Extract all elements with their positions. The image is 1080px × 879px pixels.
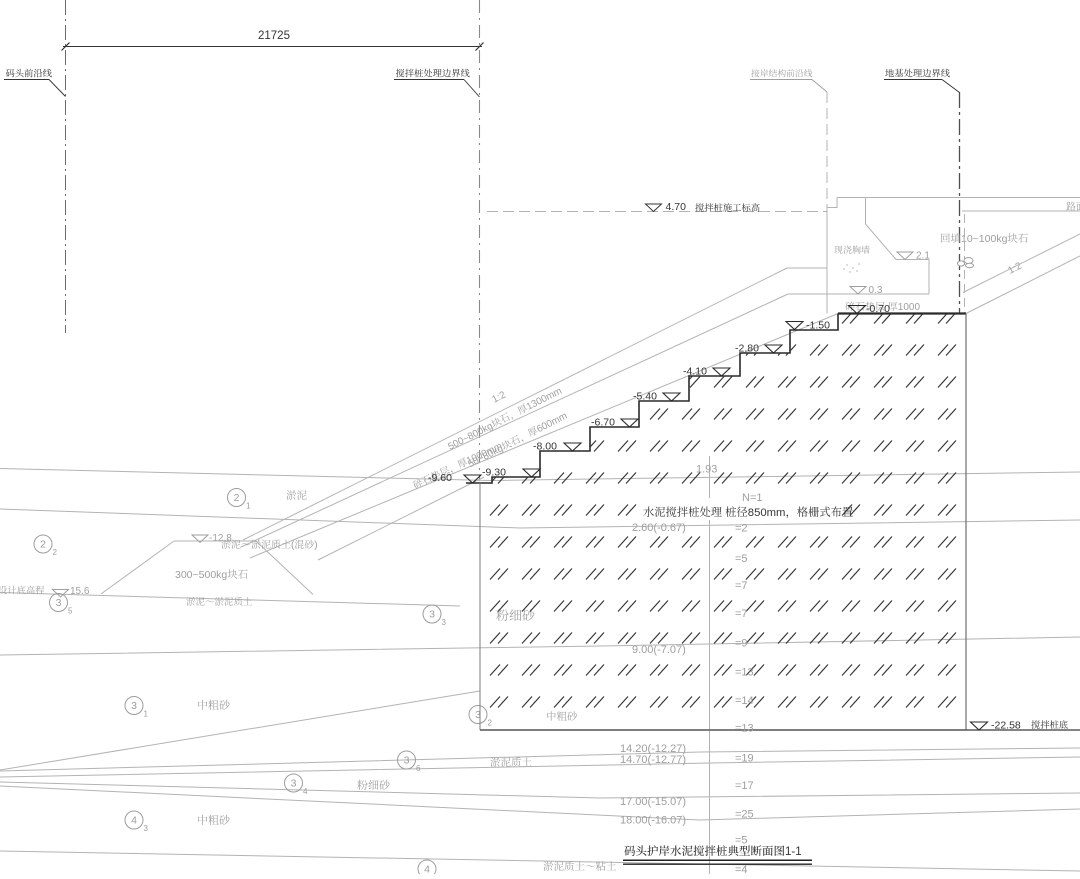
svg-text:=7: =7 <box>735 608 748 620</box>
svg-text:4: 4 <box>131 815 137 827</box>
svg-text:17.00(-15.07): 17.00(-15.07) <box>620 796 686 808</box>
svg-text:=5: =5 <box>735 553 748 565</box>
svg-text:9.00(-7.07): 9.00(-7.07) <box>632 644 686 656</box>
svg-text:3: 3 <box>144 824 149 833</box>
svg-text:2.1: 2.1 <box>916 251 930 262</box>
svg-text:-6.70: -6.70 <box>591 417 615 429</box>
svg-text:-0.70: -0.70 <box>866 303 890 315</box>
svg-text:=5: =5 <box>735 835 748 847</box>
svg-text:5: 5 <box>68 607 73 616</box>
svg-text:4.70: 4.70 <box>666 201 687 213</box>
svg-text:15.6: 15.6 <box>70 586 90 597</box>
svg-text:1.93: 1.93 <box>696 464 717 476</box>
svg-text:300~500kg: 300~500kg <box>175 569 227 581</box>
svg-text:-1.50: -1.50 <box>806 320 830 332</box>
svg-text:1: 1 <box>144 710 149 719</box>
svg-text:3: 3 <box>429 609 435 621</box>
svg-text:=14: =14 <box>735 695 754 707</box>
svg-text:0.3: 0.3 <box>869 285 883 296</box>
svg-text:1-1: 1-1 <box>785 846 802 858</box>
svg-text:=4: =4 <box>735 864 748 874</box>
svg-text:-2.80: -2.80 <box>735 343 759 355</box>
svg-text:14.70(-12.77): 14.70(-12.77) <box>620 754 686 766</box>
svg-text:18.00(-16.07): 18.00(-16.07) <box>620 815 686 827</box>
svg-text:21725: 21725 <box>258 30 290 42</box>
svg-text:=9: =9 <box>735 638 748 650</box>
svg-text:=25: =25 <box>735 809 754 821</box>
svg-text:): ) <box>314 540 317 551</box>
svg-text:2: 2 <box>234 492 240 504</box>
svg-text:3: 3 <box>291 778 297 790</box>
svg-text:3: 3 <box>56 597 62 609</box>
svg-text:2: 2 <box>488 719 493 728</box>
svg-text:2: 2 <box>40 539 46 551</box>
svg-text:2.60(-0.67): 2.60(-0.67) <box>632 522 686 534</box>
svg-text:-22.58: -22.58 <box>991 720 1021 732</box>
svg-text:=13: =13 <box>735 723 754 735</box>
svg-text:N=1: N=1 <box>742 492 763 504</box>
svg-text:1: 1 <box>246 502 251 511</box>
svg-text:-4.10: -4.10 <box>683 366 707 378</box>
svg-text:2: 2 <box>53 548 58 557</box>
svg-text:=17: =17 <box>735 780 754 792</box>
svg-text:4: 4 <box>424 864 430 874</box>
svg-text:850mm: 850mm <box>748 507 786 519</box>
svg-text:-8.00: -8.00 <box>533 441 557 453</box>
svg-text:4: 4 <box>303 787 308 796</box>
svg-text:1000: 1000 <box>898 302 921 313</box>
svg-text:3: 3 <box>442 618 447 627</box>
svg-text:-12.8: -12.8 <box>209 533 232 544</box>
svg-text:3: 3 <box>404 755 410 767</box>
svg-text:3: 3 <box>131 700 137 712</box>
svg-text:=2: =2 <box>735 523 748 535</box>
svg-text:-9.30: -9.30 <box>482 467 506 479</box>
svg-text:=19: =19 <box>735 753 754 765</box>
svg-text:10~100kg: 10~100kg <box>961 233 1008 245</box>
svg-text:=7: =7 <box>735 580 748 592</box>
svg-text:-9.60: -9.60 <box>428 472 452 484</box>
svg-text:=13: =13 <box>735 667 754 679</box>
svg-text:6: 6 <box>416 764 421 773</box>
svg-text:-5.40: -5.40 <box>633 391 657 403</box>
